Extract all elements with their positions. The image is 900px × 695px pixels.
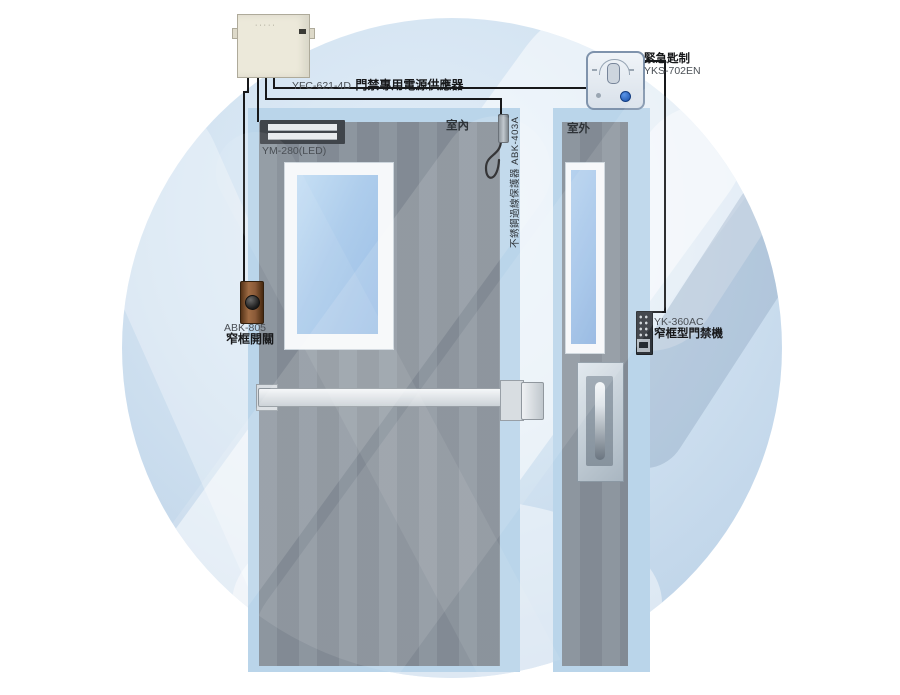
keypad-name-label: 窄框型門禁機 xyxy=(654,328,723,341)
maglock-armature-bar xyxy=(268,124,337,131)
wire-segment xyxy=(265,98,502,100)
door-window-glass-outdoor xyxy=(571,170,596,344)
key-switch-tick xyxy=(629,69,634,71)
emergency-switch-model-label: YKS-702EN xyxy=(644,65,701,77)
diagram-canvas: ····· YFC-621-4D 門禁專用電源供應器 緊急匙制 YKS-702E… xyxy=(0,0,900,695)
outdoor-label: 室外 xyxy=(567,123,590,136)
exit-button-name-label: 窄框開關 xyxy=(226,333,274,347)
access-keypad-buttons xyxy=(638,314,649,337)
panic-bar xyxy=(258,388,510,407)
power-supply-label: YFC-621-4D 門禁專用電源供應器 xyxy=(292,76,463,94)
power-supply-model-text: YFC-621-4D xyxy=(292,80,351,92)
power-supply-vent-slot xyxy=(299,29,306,34)
wire-segment xyxy=(243,91,245,282)
maglock-model-label: YM-280(LED) xyxy=(262,145,326,157)
key-switch-screw xyxy=(596,93,601,98)
wire-segment xyxy=(651,311,666,313)
wire-segment xyxy=(257,76,259,122)
door-window-glass-indoor xyxy=(297,175,378,334)
power-supply-name-text: 門禁專用電源供應器 xyxy=(355,78,463,92)
power-supply-panel-marks: ····· xyxy=(255,22,277,30)
key-switch-keyhole xyxy=(607,63,620,84)
cable-protector-label: 不銹鋼過線保護器 ABK-403A xyxy=(507,117,521,249)
maglock-armature-bar xyxy=(268,133,337,140)
access-keypad-slot xyxy=(639,342,648,348)
wire-segment xyxy=(664,60,666,313)
key-switch-indicator-dot xyxy=(620,91,631,102)
recessed-handle-slot xyxy=(595,382,605,460)
key-switch-tick xyxy=(592,69,597,71)
wire-segment xyxy=(265,76,267,100)
exit-button xyxy=(245,295,260,310)
indoor-label: 室內 xyxy=(446,120,469,133)
panic-bar-latch-plate xyxy=(521,382,544,420)
keypad-model-label: YK-360AC xyxy=(654,316,704,328)
